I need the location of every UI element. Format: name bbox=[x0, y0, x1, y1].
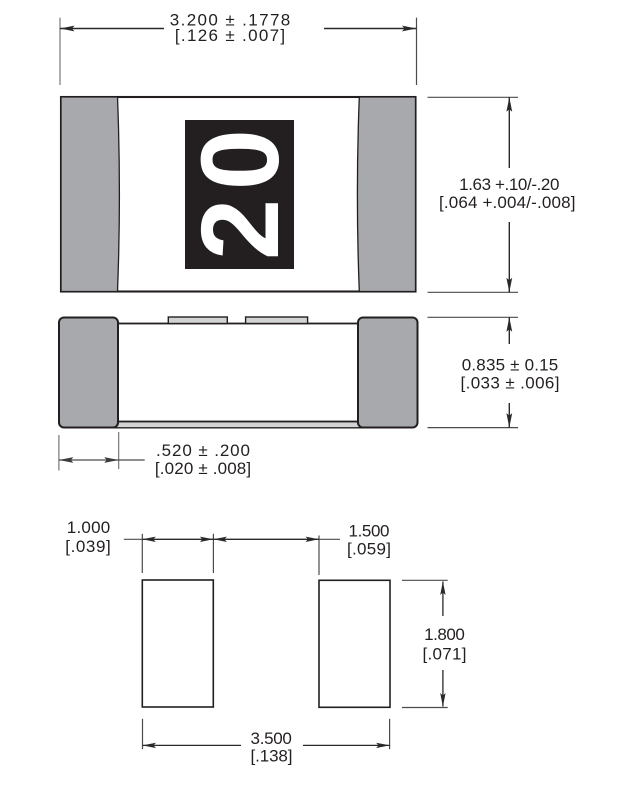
svg-text:[.064 +.004/-.008]: [.064 +.004/-.008] bbox=[439, 193, 576, 212]
svg-text:1.63 +.10/-.20: 1.63 +.10/-.20 bbox=[459, 175, 559, 194]
svg-text:.520 ± .200: .520 ± .200 bbox=[156, 441, 250, 460]
svg-text:0.835 ± 0.15: 0.835 ± 0.15 bbox=[462, 356, 559, 375]
svg-text:1.500: 1.500 bbox=[349, 522, 390, 541]
svg-text:3.500: 3.500 bbox=[251, 729, 292, 748]
svg-text:[.059]: [.059] bbox=[347, 540, 391, 559]
svg-text:[.039]: [.039] bbox=[65, 537, 111, 556]
svg-text:1.800: 1.800 bbox=[424, 625, 465, 644]
svg-text:[.033 ± .006]: [.033 ± .006] bbox=[461, 374, 560, 393]
svg-text:[.071]: [.071] bbox=[423, 644, 467, 663]
svg-text:1.000: 1.000 bbox=[67, 518, 110, 537]
svg-text:[.020 ± .008]: [.020 ± .008] bbox=[155, 459, 251, 478]
svg-text:[.138]: [.138] bbox=[251, 747, 293, 766]
svg-text:20: 20 bbox=[179, 121, 302, 260]
